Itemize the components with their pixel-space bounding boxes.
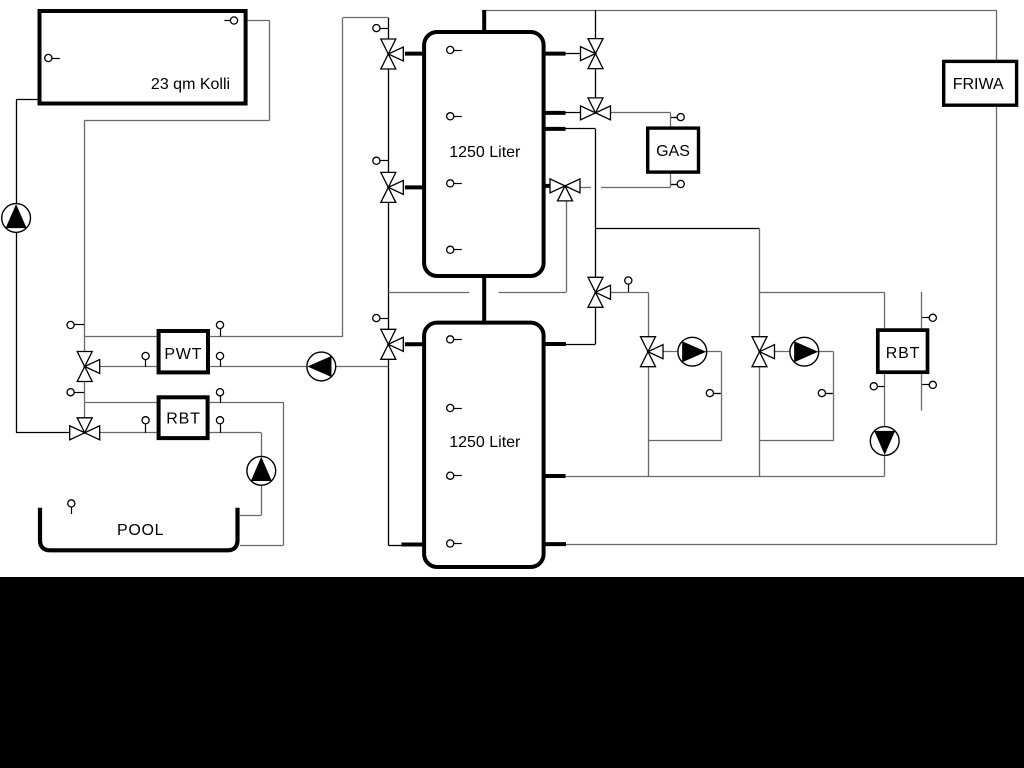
svg-text:GAS: GAS — [656, 143, 690, 160]
svg-text:23 qm Kolli: 23 qm Kolli — [151, 76, 230, 93]
svg-text:POOL: POOL — [117, 522, 164, 539]
svg-text:FRIWA: FRIWA — [953, 76, 1004, 93]
svg-text:1250 Liter: 1250 Liter — [449, 434, 521, 451]
svg-text:1250 Liter: 1250 Liter — [449, 144, 521, 161]
svg-text:PWT: PWT — [164, 346, 202, 363]
svg-text:RBT: RBT — [166, 411, 200, 428]
svg-text:RBT: RBT — [886, 345, 920, 362]
